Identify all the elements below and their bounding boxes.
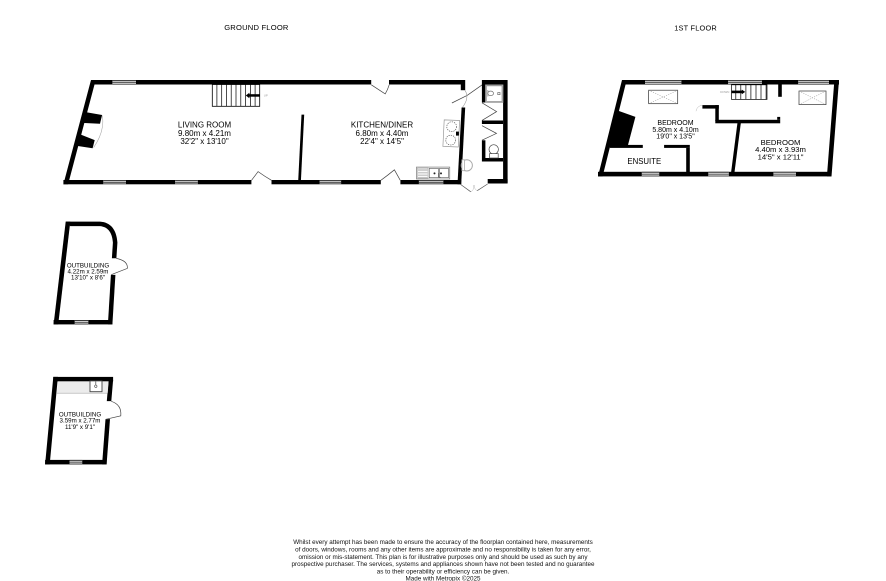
svg-text:11'9" x 9'1": 11'9" x 9'1" xyxy=(65,424,95,431)
svg-text:as to their operability or eff: as to their operability or efficiency ca… xyxy=(377,568,510,575)
svg-text:19'0" x 13'5": 19'0" x 13'5" xyxy=(656,134,695,141)
svg-text:22'4" x 14'5": 22'4" x 14'5" xyxy=(360,137,404,146)
svg-text:14'5" x 12'11": 14'5" x 12'11" xyxy=(758,152,804,161)
svg-text:of doors, windows, rooms and a: of doors, windows, rooms and any other i… xyxy=(295,547,591,554)
svg-text:BEDROOM: BEDROOM xyxy=(657,120,693,127)
svg-text:13'10" x 8'6": 13'10" x 8'6" xyxy=(71,275,105,282)
svg-text:Made with Metropix ©2025: Made with Metropix ©2025 xyxy=(406,575,481,581)
svg-text:32'2" x 13'10": 32'2" x 13'10" xyxy=(180,137,228,146)
svg-text:ENSUITE: ENSUITE xyxy=(627,157,661,166)
svg-text:DOWN: DOWN xyxy=(720,90,729,94)
svg-text:omission or mis-statement. Thi: omission or mis-statement. This plan is … xyxy=(299,554,589,561)
svg-text:1ST FLOOR: 1ST FLOOR xyxy=(674,23,717,32)
svg-text:GROUND FLOOR: GROUND FLOOR xyxy=(224,23,289,32)
svg-text:prospective purchaser. The ser: prospective purchaser. The services, sys… xyxy=(291,561,595,568)
svg-text:UP: UP xyxy=(264,94,268,98)
svg-text:Whilst every attempt has been: Whilst every attempt has been made to en… xyxy=(293,539,593,546)
